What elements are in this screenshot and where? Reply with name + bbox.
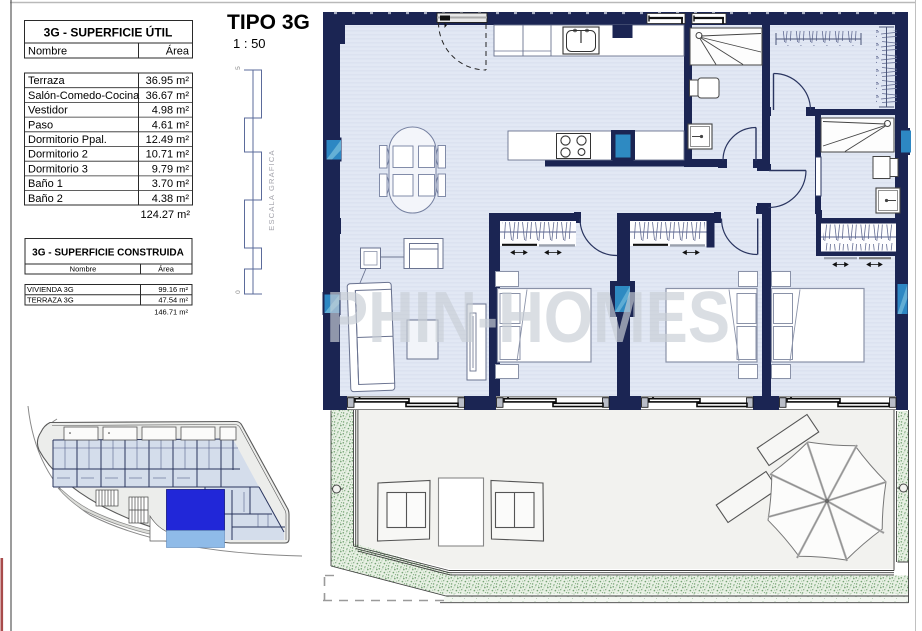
- svg-text:Salón-Comedo-Cocina: Salón-Comedo-Cocina: [28, 90, 140, 102]
- svg-text:9.79 m²: 9.79 m²: [152, 163, 190, 175]
- svg-text:1 : 50: 1 : 50: [233, 36, 266, 51]
- svg-text:36.95 m²: 36.95 m²: [146, 75, 190, 87]
- svg-text:Dormitorio 2: Dormitorio 2: [28, 149, 88, 161]
- svg-text:4.61 m²: 4.61 m²: [152, 119, 190, 131]
- svg-text:TERRAZA 3G: TERRAZA 3G: [27, 296, 74, 305]
- svg-text:Área: Área: [166, 45, 190, 58]
- svg-text:0: 0: [235, 290, 242, 294]
- svg-text:Terraza: Terraza: [28, 75, 66, 87]
- svg-text:Nombre: Nombre: [70, 265, 97, 274]
- svg-text:124.27 m²: 124.27 m²: [140, 209, 190, 221]
- svg-text:12.49 m²: 12.49 m²: [146, 134, 190, 146]
- svg-text:4.38 m²: 4.38 m²: [152, 193, 190, 205]
- svg-text:TIPO 3G: TIPO 3G: [227, 11, 310, 34]
- svg-text:146.71 m²: 146.71 m²: [154, 308, 188, 317]
- svg-text:36.67 m²: 36.67 m²: [146, 90, 190, 102]
- svg-text:5: 5: [235, 66, 242, 70]
- svg-text:10.71 m²: 10.71 m²: [146, 149, 190, 161]
- svg-text:Dormitorio Ppal.: Dormitorio Ppal.: [28, 134, 107, 146]
- svg-text:4.98 m²: 4.98 m²: [152, 105, 190, 117]
- svg-text:3G - SUPERFICIE ÚTIL: 3G - SUPERFICIE ÚTIL: [44, 25, 173, 40]
- svg-text:Vestidor: Vestidor: [28, 105, 68, 117]
- svg-text:3G - SUPERFICIE CONSTRUIDA: 3G - SUPERFICIE CONSTRUIDA: [32, 248, 184, 259]
- svg-text:Nombre: Nombre: [28, 46, 67, 58]
- svg-text:VIVIENDA 3G: VIVIENDA 3G: [27, 285, 74, 294]
- svg-text:PHIN-HOMES: PHIN-HOMES: [326, 278, 730, 358]
- svg-text:Baño 1: Baño 1: [28, 178, 63, 190]
- svg-text:3.70 m²: 3.70 m²: [152, 178, 190, 190]
- svg-text:Área: Área: [158, 265, 175, 274]
- svg-text:99.16 m²: 99.16 m²: [158, 285, 188, 294]
- svg-text:Paso: Paso: [28, 119, 53, 131]
- svg-text:ESCALA GRAFICA: ESCALA GRAFICA: [267, 149, 276, 230]
- svg-text:Dormitorio 3: Dormitorio 3: [28, 163, 88, 175]
- svg-text:Baño 2: Baño 2: [28, 193, 63, 205]
- svg-text:47.54 m²: 47.54 m²: [158, 296, 188, 305]
